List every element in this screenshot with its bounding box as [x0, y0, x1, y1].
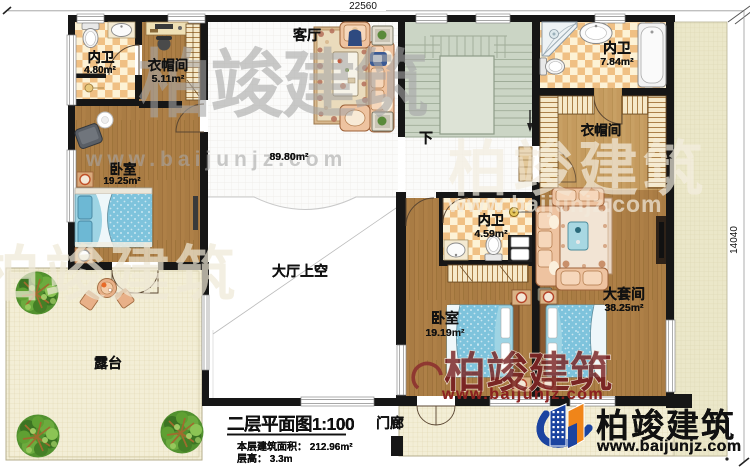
svg-text:柏竣建筑: 柏竣建筑: [0, 241, 240, 308]
svg-text:门廊: 门廊: [376, 415, 404, 431]
svg-text:7.84m²: 7.84m²: [600, 56, 634, 68]
svg-text:卧室: 卧室: [110, 161, 137, 177]
svg-text:衣帽间: 衣帽间: [581, 122, 622, 138]
svg-text:22560: 22560: [349, 1, 377, 12]
svg-text:大厅上空: 大厅上空: [272, 263, 328, 279]
svg-text:内卫: 内卫: [88, 49, 115, 65]
svg-text:客厅: 客厅: [292, 27, 321, 43]
svg-text:二层平面图1:100: 二层平面图1:100: [227, 414, 355, 434]
svg-text:卧室: 卧室: [431, 310, 459, 326]
svg-text:本层建筑面积： 212.96m²: 本层建筑面积： 212.96m²: [237, 440, 353, 453]
svg-text:www.baijunjz.com: www.baijunjz.com: [596, 438, 742, 455]
svg-text:内卫: 内卫: [478, 212, 505, 228]
svg-text:14040: 14040: [729, 226, 740, 254]
svg-text:19.19m²: 19.19m²: [425, 327, 465, 339]
svg-text:www.baijunjz.com: www.baijunjz.com: [441, 386, 604, 403]
svg-text:38.25m²: 38.25m²: [604, 302, 644, 314]
svg-text:下: 下: [419, 130, 433, 146]
svg-text:19.25m²: 19.25m²: [103, 176, 141, 187]
svg-text:大套间: 大套间: [603, 286, 645, 302]
svg-text:内卫: 内卫: [603, 40, 631, 56]
svg-text:4.80m²: 4.80m²: [84, 65, 116, 76]
svg-text:5.11m²: 5.11m²: [152, 73, 185, 85]
svg-text:露台: 露台: [94, 355, 122, 371]
svg-text:衣帽间: 衣帽间: [148, 57, 189, 73]
svg-text:层高： 3.3m: 层高： 3.3m: [237, 452, 293, 465]
svg-text:89.80m²: 89.80m²: [269, 151, 309, 163]
svg-text:4.59m²: 4.59m²: [474, 228, 508, 240]
